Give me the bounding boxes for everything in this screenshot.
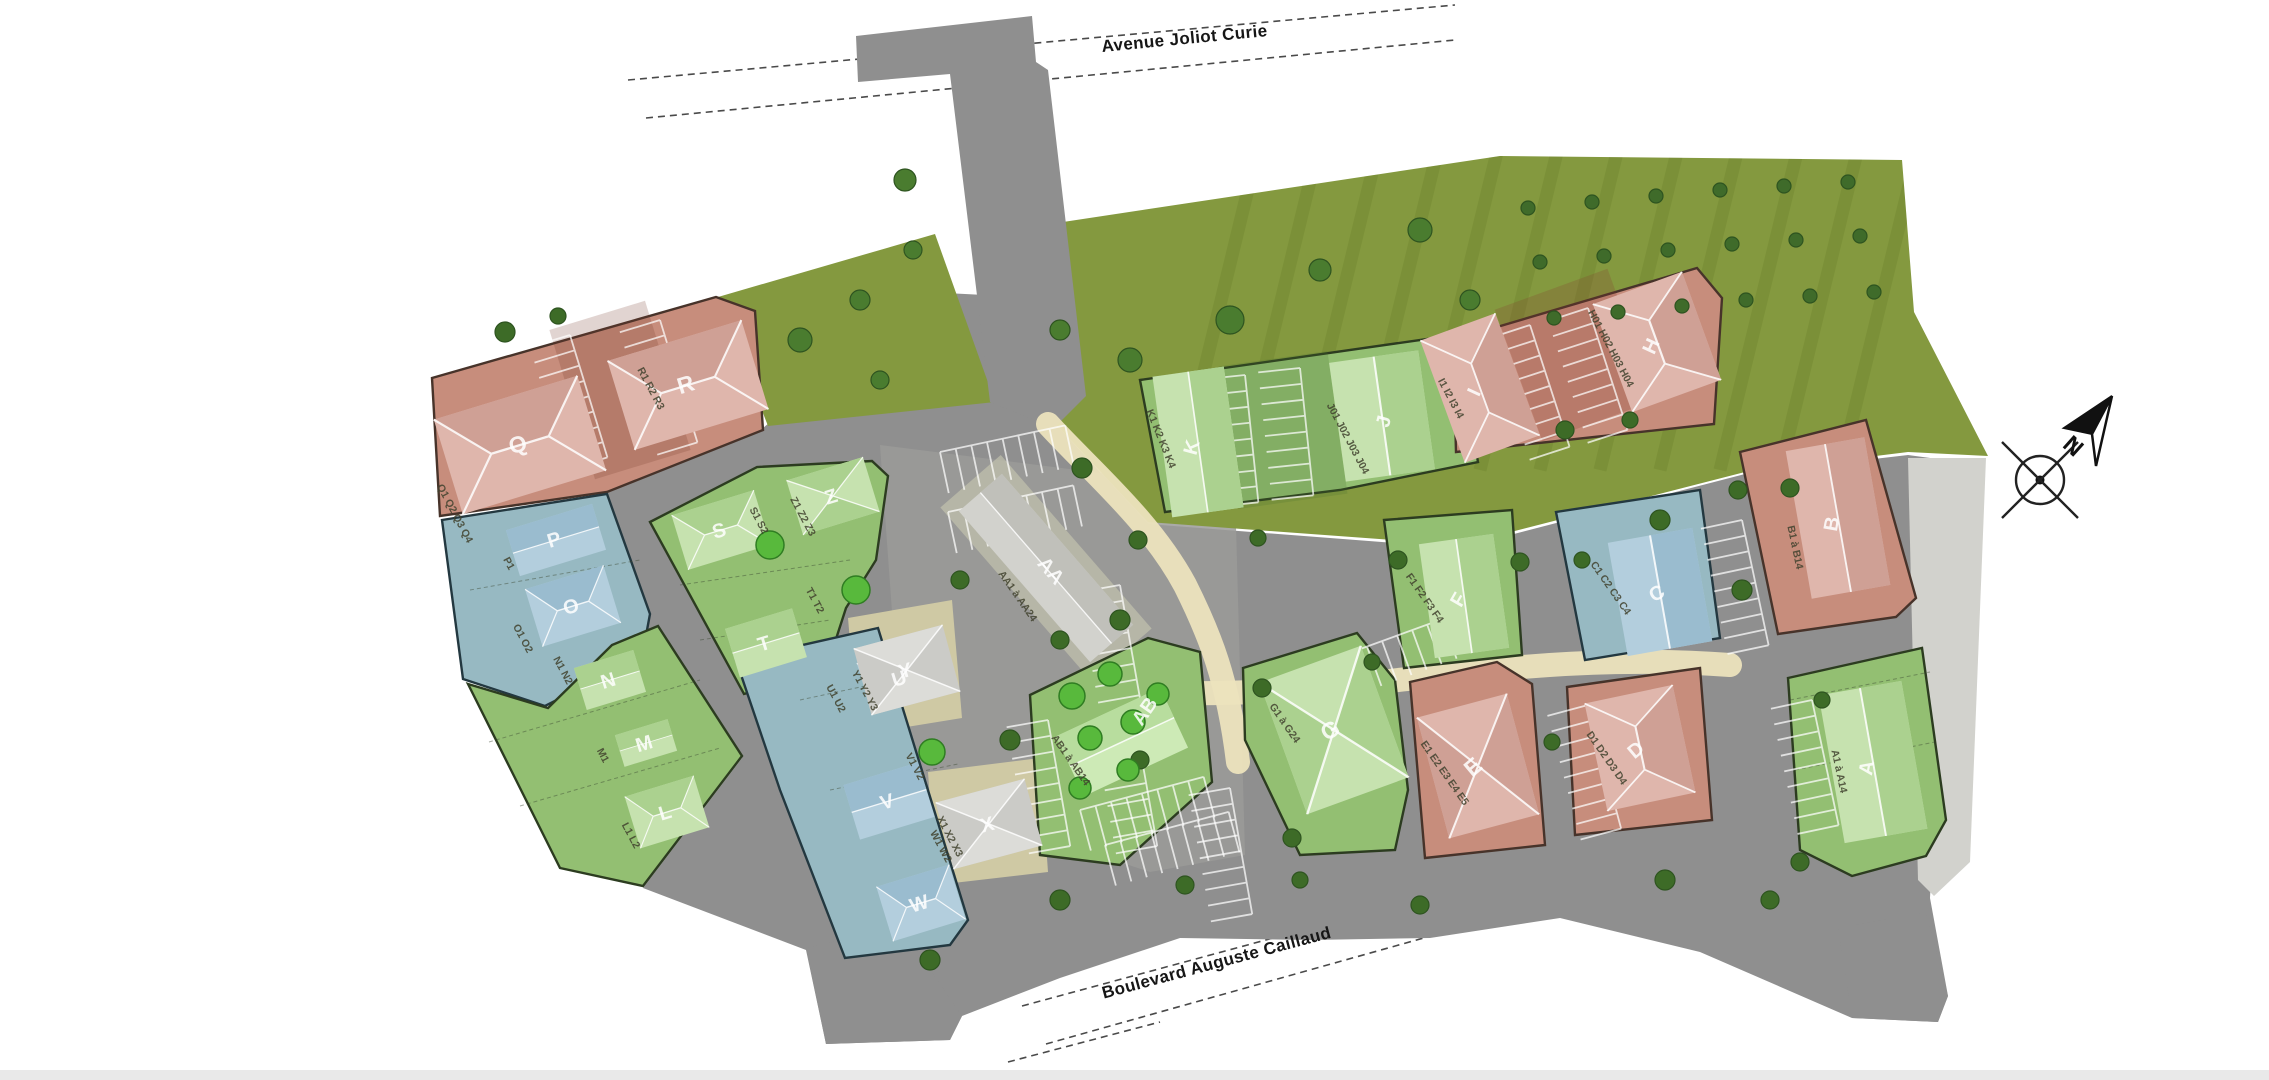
street-label-avenue: Avenue Joliot Curie [1101,21,1269,56]
site-plan-drawing: Q R P O N M L S Z T U V W Y X AA AB K J … [0,0,2269,1080]
bottom-edge-strip [0,1070,2269,1080]
site-plan-page: Q R P O N M L S Z T U V W Y X AA AB K J … [0,0,2269,1080]
boulevard-boundary-line [1008,1022,1160,1062]
north-compass: N [2002,396,2112,518]
